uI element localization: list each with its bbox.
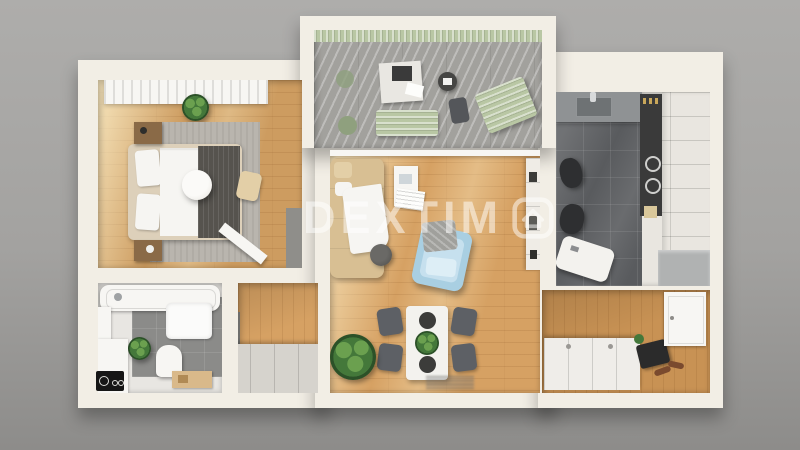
armchair-pillow [425,256,457,277]
table-item [443,78,452,85]
entry-door-panel [664,292,706,346]
low-wardrobe-cabinet [238,344,318,393]
sideboard-handle [566,344,571,349]
nightstand [134,240,162,261]
scene-background: DEXTIM [0,0,800,450]
circles-logo-badge [96,371,124,391]
bedroom-plant [182,94,209,121]
balcony-door-frame [330,150,540,156]
serving-tray [392,66,412,81]
bowl [419,356,436,373]
large-potted-plant [330,334,376,380]
entry-hall [542,290,710,393]
cooktop-knob [645,156,661,172]
shelf-books [529,216,537,230]
cutting-board [644,206,657,218]
cooktop-knob [645,178,661,194]
shelf-decor [530,250,537,259]
spice-jars [643,98,659,104]
badge-small-circle [118,380,124,386]
kitchen-faucet [590,92,596,102]
door-inset [668,296,704,344]
living-room [330,150,540,393]
bathroom-window [98,307,111,343]
sideboard-handle [608,344,613,349]
sofa-pillow [334,162,352,178]
fluffy-bath-mat [166,303,212,339]
nightstand-item [146,245,154,253]
pergola-slats [314,30,542,42]
garden-bench [376,110,438,136]
magazines-on-floor [395,188,425,211]
round-pouf [370,244,392,266]
wardrobe-panel [286,208,302,268]
bath-faucet [114,293,122,301]
balcony-walls [300,16,556,148]
small-plant [634,334,644,344]
tray-item [178,375,188,383]
grey-throw [421,219,458,252]
appliance-column [640,94,662,216]
table-item [570,245,579,252]
round-wall-decor [336,70,354,88]
garden-chair [448,97,470,125]
wooden-tray [172,371,212,388]
pillow [134,149,161,187]
dining-chair [376,343,403,373]
badge-large-circle [99,376,109,386]
bathroom-plant [128,337,151,360]
pendant-ball-lamp [182,170,212,200]
magazine-on-table [399,174,412,184]
dining-chair [450,306,478,336]
dining-table [406,306,448,380]
small-green-table [338,116,357,135]
base-grey-cabinet [658,250,710,286]
nightstand-item [140,127,147,134]
wall-marks [426,376,474,389]
bedroom [98,80,302,268]
dark-wall-panel [238,312,240,346]
book-shelf-strip [526,158,540,270]
blue-armchair [410,223,473,293]
dining-chair [450,343,477,373]
door-handle [670,316,674,320]
pillow [135,193,161,231]
table-plant [415,331,439,355]
nightstand [134,122,162,144]
hallway [238,283,318,393]
dining-chair [376,306,404,336]
lounge-chair [474,76,538,134]
kitchen [556,92,710,286]
shoe [653,365,671,376]
balcony-floor [314,30,542,148]
bowl [419,312,436,329]
kitchen-counter [556,92,642,122]
shelf-books [529,172,537,182]
round-side-table [438,72,457,91]
white-sideboard [544,338,640,390]
